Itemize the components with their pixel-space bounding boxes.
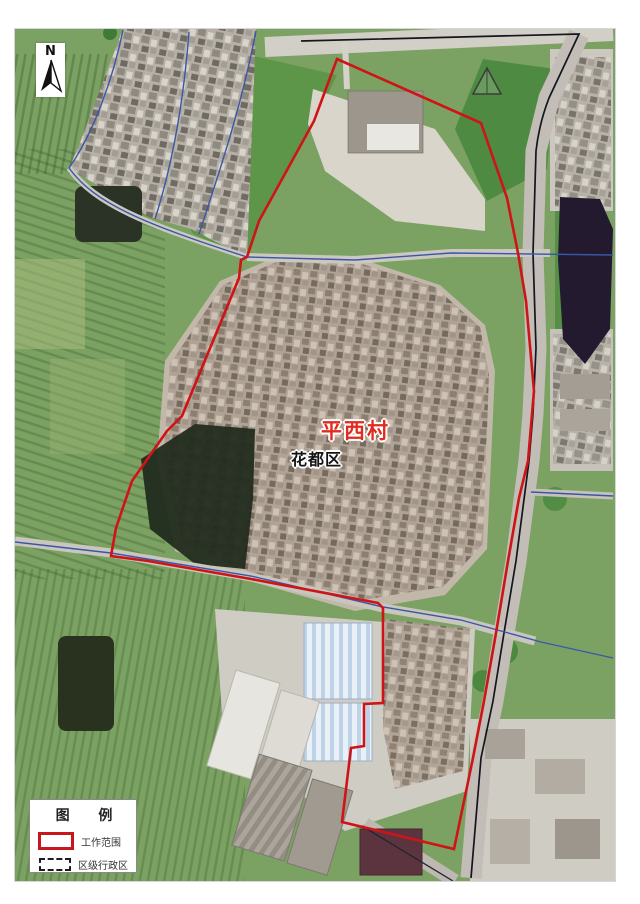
legend-item-work-scope: 工作范围 [38,832,136,850]
field-patch [15,259,85,349]
satellite-map: 平西村 花都区 N 图 例 工作范围 区级行政区 [14,28,616,882]
blue-roof-factory [304,623,372,699]
legend-item-district: 区级行政区 [38,857,136,872]
north-arrow-icon [38,58,64,94]
road-entry [345,43,347,89]
building [485,729,525,759]
white-roof [367,124,419,150]
district-label: 花都区 [291,446,342,470]
village-label: 平西村 [321,415,390,445]
field-patch [50,359,125,454]
dark-red-building [360,829,422,875]
building [490,819,530,864]
north-letter: N [45,45,56,58]
building [535,759,585,794]
building [560,374,610,399]
district-swatch-icon [39,858,71,871]
legend-title: 图 例 [38,805,130,825]
building [560,409,610,431]
village-cluster-south [383,619,470,789]
legend: 图 例 工作范围 区级行政区 [29,799,137,873]
legend-item-label: 区级行政区 [78,857,128,872]
work-scope-swatch-icon [38,832,74,850]
building [555,819,600,859]
pond-southwest [58,636,114,731]
north-arrow: N [36,43,65,97]
legend-item-label: 工作范围 [81,834,121,849]
map-figure: 平西村 花都区 N 图 例 工作范围 区级行政区 [0,0,640,904]
